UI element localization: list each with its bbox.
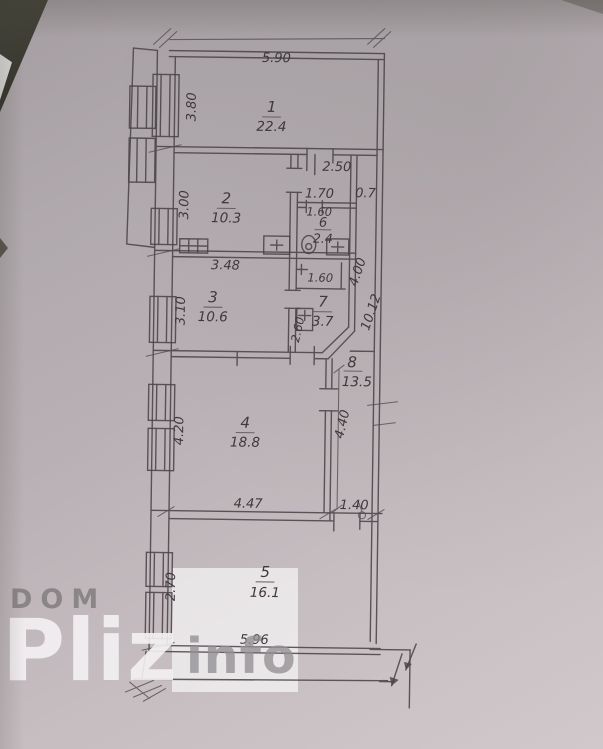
dim-room3-left: 3.10 (174, 296, 189, 325)
dim-room2-left: 3.00 (177, 190, 192, 219)
room-7-area: 3.7 (312, 314, 334, 330)
room-4-area: 18.8 (230, 434, 260, 450)
dim-room1-left: 3.80 (184, 92, 199, 121)
dim-wc-hall-top: 1.70 (305, 186, 334, 201)
dim-corridor-bottom: 1.40 (340, 498, 369, 513)
dimension-labels: 5.90 3.80 2.50 3.00 3.48 1.70 0.7 1.60 1… (163, 50, 388, 650)
dim-room5-left: 2.70 (164, 572, 179, 601)
dim-shaft-area: 0.7 (355, 186, 377, 201)
room-2-number: 2 (221, 189, 231, 207)
dim-room4-right: 4.40 (332, 409, 353, 441)
room-8-area: 13.5 (342, 374, 372, 390)
floorplan-photo: 1 22.4 2 10.3 3 10.6 4 18.8 5 16.1 6 2.4… (0, 0, 603, 749)
room-8-number: 8 (347, 353, 357, 371)
room-5-number: 5 (260, 563, 270, 581)
room-1-number: 1 (267, 98, 277, 116)
watermark-info: info (186, 628, 297, 685)
top-dimension-line (153, 25, 390, 50)
room-3-number: 3 (208, 288, 218, 306)
room-4-number: 4 (240, 414, 250, 432)
room-3-area: 10.6 (198, 309, 228, 325)
dim-niche-width: 1.60 (307, 271, 333, 285)
watermark-pliz: Pliz (2, 606, 178, 696)
room-7-number: 7 (318, 293, 328, 311)
dim-room4-left: 4.20 (172, 416, 187, 445)
room-2-area: 10.3 (211, 210, 241, 226)
dim-room7-left: 2.60 (288, 316, 307, 344)
dim-hall-top: 2.50 (322, 160, 351, 175)
room-6-area: 2.4 (313, 231, 333, 246)
dim-room2-bottom: 3.48 (211, 258, 240, 273)
dim-wc-width: 1.60 (306, 204, 332, 218)
dim-room4-bottom: 4.47 (234, 497, 264, 512)
room-1-area: 22.4 (256, 119, 286, 135)
room-5-area: 16.1 (250, 585, 280, 601)
dim-room1-top: 5.90 (262, 51, 291, 66)
